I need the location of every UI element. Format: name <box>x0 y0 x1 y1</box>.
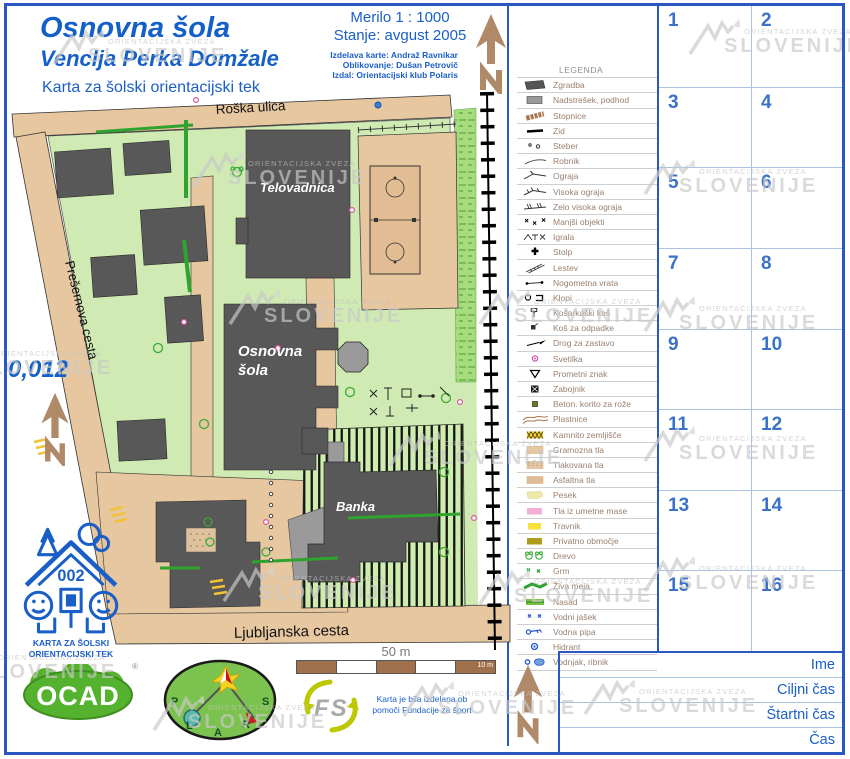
result-row-label: Štartni čas <box>767 707 836 723</box>
legend-item-label: Robnik <box>553 156 579 166</box>
fs-foundation-logo: FS <box>300 678 362 734</box>
legend-item-label: Nasad <box>553 597 578 607</box>
scale-bar-sublabel: 10 m <box>477 662 493 669</box>
svg-text:L: L <box>186 720 193 732</box>
club-number: 002 <box>57 567 84 585</box>
legend-item-label: Kamnito zemljišče <box>553 430 622 440</box>
page-title: Osnovna šola <box>40 12 230 45</box>
basketball-hoop-icon <box>517 307 553 319</box>
legend-item-label: Privatno območje <box>553 536 619 546</box>
legend-item-label: Stolp <box>553 247 572 257</box>
label-school-2: šola <box>238 362 268 379</box>
contours-icon <box>517 413 553 425</box>
legend-item: Igrala <box>517 230 657 245</box>
legend-item: Zelo visoka ograja <box>517 200 657 215</box>
water-tap-icon <box>517 626 553 638</box>
octagon-structure <box>338 342 368 372</box>
small-objects-icon <box>517 216 553 228</box>
building-block <box>140 206 208 265</box>
legend-item: Steber <box>517 139 657 154</box>
legend-item: Stolp <box>517 245 657 260</box>
control-number: 5 <box>668 172 679 194</box>
flower-box-icon <box>517 398 553 410</box>
control-cell: 12 <box>751 409 843 490</box>
legend-item-label: Beton. korito za rože <box>553 399 631 409</box>
ocad-registered-mark: ® <box>132 662 138 671</box>
asphalt-icon <box>517 474 553 486</box>
result-row-label: Čas <box>809 732 835 748</box>
result-row: Čas <box>560 728 843 752</box>
control-cell: 7 <box>659 248 751 329</box>
legend-item: Asfaltna tla <box>517 473 657 488</box>
legend-item: Gramozna tla <box>517 443 657 458</box>
label-bank: Banka <box>336 499 375 514</box>
meadow-icon <box>517 520 553 532</box>
legend-item: Živa meja <box>517 579 657 594</box>
tree-icon <box>517 550 553 562</box>
hedge-icon <box>517 580 553 592</box>
north-arrow-icon <box>508 660 548 744</box>
label-school-1: Osnovna <box>238 343 302 360</box>
map-scale: Merilo 1 : 1000 <box>325 9 475 27</box>
legend-item: Prometni znak <box>517 367 657 382</box>
legend-item-label: Grm <box>553 566 570 576</box>
bench-icon <box>517 292 553 304</box>
legend-item-label: Živa meja <box>553 581 590 591</box>
legend-item: Klopi <box>517 291 657 306</box>
legend-item: Travnik <box>517 519 657 534</box>
legend-item-label: Drog za zastavo <box>553 338 614 348</box>
stairs-icon <box>517 110 553 122</box>
control-cell: 9 <box>659 329 751 410</box>
credits: Izdelava karte: Andraž Ravnikar Oblikova… <box>290 50 458 80</box>
trash-bin-icon <box>517 322 553 334</box>
credit-line: Oblikovanje: Dušan Petrovič <box>290 60 458 70</box>
control-cell: 11 <box>659 409 751 490</box>
legend-item-label: Koš za odpadke <box>553 323 614 333</box>
credit-line: Izdelava karte: Andraž Ravnikar <box>290 50 458 60</box>
north-arrow-icon <box>36 390 74 466</box>
control-number: 16 <box>761 575 782 597</box>
control-cell: 6 <box>751 167 843 248</box>
pillar-trail <box>269 470 272 561</box>
legend-item-label: Tlakovana tla <box>553 460 604 470</box>
result-table: ImeCiljni časŠtartni časČas <box>558 651 845 755</box>
label-gym: Telovadnica <box>260 180 335 195</box>
svg-text:S: S <box>262 696 269 708</box>
legend-item-label: Asfaltna tla <box>553 475 595 485</box>
private-icon <box>517 535 553 547</box>
ladder-icon <box>517 262 553 274</box>
control-cell: 16 <box>751 570 843 651</box>
bush-icon <box>517 565 553 577</box>
control-grid: 12345678910111213141516 <box>659 6 843 652</box>
very-high-fence-icon <box>517 201 553 213</box>
building-block <box>54 148 113 198</box>
control-number: 3 <box>668 92 679 114</box>
legend-item: Plastnice <box>517 412 657 427</box>
result-row: Ciljni čas <box>560 678 843 703</box>
playground-icon <box>517 231 553 243</box>
legend-item: Košarkaški koš <box>517 306 657 321</box>
legend-item-label: Tla iz umetne mase <box>553 506 627 516</box>
control-cell: 1 <box>659 6 751 87</box>
legend-item: Vodni jašek <box>517 610 657 625</box>
club-caption: KARTA ZA ŠOLSKI ORIENTACIJSKI TEK <box>6 638 136 660</box>
result-row-label: Ciljni čas <box>777 682 835 698</box>
legend-item: Ograja <box>517 169 657 184</box>
legend-item-label: Košarkaški koš <box>553 308 610 318</box>
legend-item: Drevo <box>517 549 657 564</box>
legend-item-label: Plastnice <box>553 414 588 424</box>
legend-item-label: Travnik <box>553 521 581 531</box>
canopy-icon <box>517 94 553 106</box>
building-gym <box>246 130 350 278</box>
control-number: 1 <box>668 10 679 32</box>
paved-icon <box>517 459 553 471</box>
legend-item-label: Gramozna tla <box>553 445 604 455</box>
legend-item: Beton. korito za rože <box>517 397 657 412</box>
hydrant-mark <box>375 102 381 108</box>
sand-icon <box>517 489 553 501</box>
control-number: 13 <box>668 495 689 517</box>
water-shaft-icon <box>517 611 553 623</box>
control-number: 8 <box>761 253 772 275</box>
club-002-logo: 002 <box>16 512 126 638</box>
legend-item-label: Nogometna vrata <box>553 278 618 288</box>
legend-item-label: Steber <box>553 141 578 151</box>
legend-item-label: Svetilka <box>553 354 583 364</box>
legend-item: Svetilka <box>517 352 657 367</box>
control-number: 7 <box>668 253 679 275</box>
legend-item-label: Vodna pipa <box>553 627 596 637</box>
page: Osnovna šola Venclja Perka Domžale Karta… <box>0 0 850 759</box>
svg-text:R: R <box>242 719 250 731</box>
gravel-icon <box>517 444 553 456</box>
ocad-logo: OCAD <box>22 664 134 722</box>
legend-item-label: Igrala <box>553 232 574 242</box>
result-row-label: Ime <box>811 657 835 673</box>
control-number: 11 <box>668 414 688 436</box>
street-label-ljubljanska: Ljubljanska cesta <box>234 622 350 642</box>
control-cell: 10 <box>751 329 843 410</box>
result-row: Štartni čas <box>560 703 843 728</box>
traffic-sign-icon <box>517 368 553 380</box>
scale-bar: 50 m 10 m <box>296 644 496 674</box>
legend-item: Zabojnik <box>517 382 657 397</box>
page-subtitle-name: Venclja Perka Domžale <box>40 46 279 72</box>
legend-item: Vodna pipa <box>517 625 657 640</box>
legend-item-label: Klopi <box>553 293 572 303</box>
legend-item: Grm <box>517 564 657 579</box>
result-row: Ime <box>560 653 843 678</box>
building-block <box>123 140 171 175</box>
synthetic-icon <box>517 505 553 517</box>
control-cell: 3 <box>659 87 751 168</box>
legend-item: Zid <box>517 124 657 139</box>
legend-item-label: Drevo <box>553 551 576 561</box>
svg-text:P: P <box>171 696 178 708</box>
high-fence-icon <box>517 186 553 198</box>
container-icon <box>517 383 553 395</box>
flagpole-icon <box>517 337 553 349</box>
railway <box>487 92 495 650</box>
control-cell: 14 <box>751 490 843 571</box>
building-block <box>156 500 260 608</box>
page-subtitle: Karta za šolski orientacijski tek <box>42 79 260 97</box>
legend-item-label: Zid <box>553 126 565 136</box>
building-block <box>117 419 167 461</box>
lamp-icon <box>517 353 553 365</box>
map-note: 0,012 <box>8 356 68 384</box>
control-number: 4 <box>761 92 772 114</box>
plantation-icon <box>517 596 553 608</box>
legend-title: LEGENDA <box>517 63 657 78</box>
north-arrow-icon <box>470 12 512 94</box>
legend-item: Visoka ograja <box>517 185 657 200</box>
control-cell: 4 <box>751 87 843 168</box>
legend-item-label: Stopnice <box>553 111 586 121</box>
legend-item: Pesek <box>517 488 657 503</box>
legend: LEGENDA ZgradbaNadstrešek, podhodStopnic… <box>517 63 657 671</box>
scale-bar-segments: 10 m <box>296 660 496 674</box>
control-cell: 5 <box>659 167 751 248</box>
building-block <box>91 255 138 298</box>
hydrant-icon <box>517 641 553 653</box>
control-number: 14 <box>761 495 782 517</box>
legend-item: Privatno območje <box>517 534 657 549</box>
legend-item: Zgradba <box>517 78 657 93</box>
credit-line: Izdal: Orientacijski klub Polaris <box>290 70 458 80</box>
legend-item-label: Nadstrešek, podhod <box>553 95 629 105</box>
legend-item-label: Ograja <box>553 171 579 181</box>
goal-icon <box>517 277 553 289</box>
legend-item-label: Vodni jašek <box>553 612 596 622</box>
legend-item: Manjši objekti <box>517 215 657 230</box>
legend-item: Nogometna vrata <box>517 276 657 291</box>
control-number: 2 <box>761 10 772 32</box>
control-number: 6 <box>761 172 772 194</box>
scale-bar-label: 50 m <box>296 644 496 659</box>
legend-item-label: Lestev <box>553 263 578 273</box>
legend-item-label: Zgradba <box>553 80 585 90</box>
legend-item-label: Visoka ograja <box>553 187 604 197</box>
control-number: 10 <box>761 334 782 356</box>
legend-item-label: Zelo visoka ograja <box>553 202 622 212</box>
legend-item: Lestev <box>517 260 657 275</box>
legend-item: Nadstrešek, podhod <box>517 93 657 108</box>
funding-note: Karta je bila izdelana ob pomoči Fundaci… <box>362 694 482 716</box>
legend-item: Kamnito zemljišče <box>517 428 657 443</box>
map-status: Stanje: avgust 2005 <box>325 27 475 45</box>
control-cell: 2 <box>751 6 843 87</box>
basketball-court <box>370 166 420 274</box>
polaris-compass-logo: PLA RS <box>162 658 278 742</box>
pillar-icon <box>517 140 553 152</box>
paved-patch <box>186 528 216 552</box>
legend-item: Nasad <box>517 595 657 610</box>
fence-icon <box>517 170 553 182</box>
legend-item: Tla iz umetne mase <box>517 503 657 518</box>
legend-item-label: Pesek <box>553 490 577 500</box>
legend-item-label: Manjši objekti <box>553 217 605 227</box>
svg-text:A: A <box>214 727 222 739</box>
control-number: 12 <box>761 414 782 436</box>
ocad-text: OCAD <box>36 681 120 711</box>
tower-icon <box>517 246 553 258</box>
legend-item: Drog za zastavo <box>517 336 657 351</box>
legend-item: Robnik <box>517 154 657 169</box>
stony-ground-icon <box>517 429 553 441</box>
legend-items: ZgradbaNadstrešek, podhodStopniceZidSteb… <box>517 78 657 670</box>
legend-item-label: Zabojnik <box>553 384 585 394</box>
control-cell: 13 <box>659 490 751 571</box>
legend-item-label: Prometni znak <box>553 369 607 379</box>
control-cell: 8 <box>751 248 843 329</box>
building-icon <box>517 79 553 91</box>
fs-text: FS <box>314 695 349 722</box>
legend-item: Koš za odpadke <box>517 321 657 336</box>
control-number: 15 <box>668 575 689 597</box>
wall-icon <box>517 125 553 137</box>
curb-icon <box>517 155 553 167</box>
control-cell: 15 <box>659 570 751 651</box>
control-number: 9 <box>668 334 679 356</box>
legend-item: Stopnice <box>517 109 657 124</box>
map-scale-block: Merilo 1 : 1000 Stanje: avgust 2005 <box>325 9 475 45</box>
legend-item: Tlakovana tla <box>517 458 657 473</box>
